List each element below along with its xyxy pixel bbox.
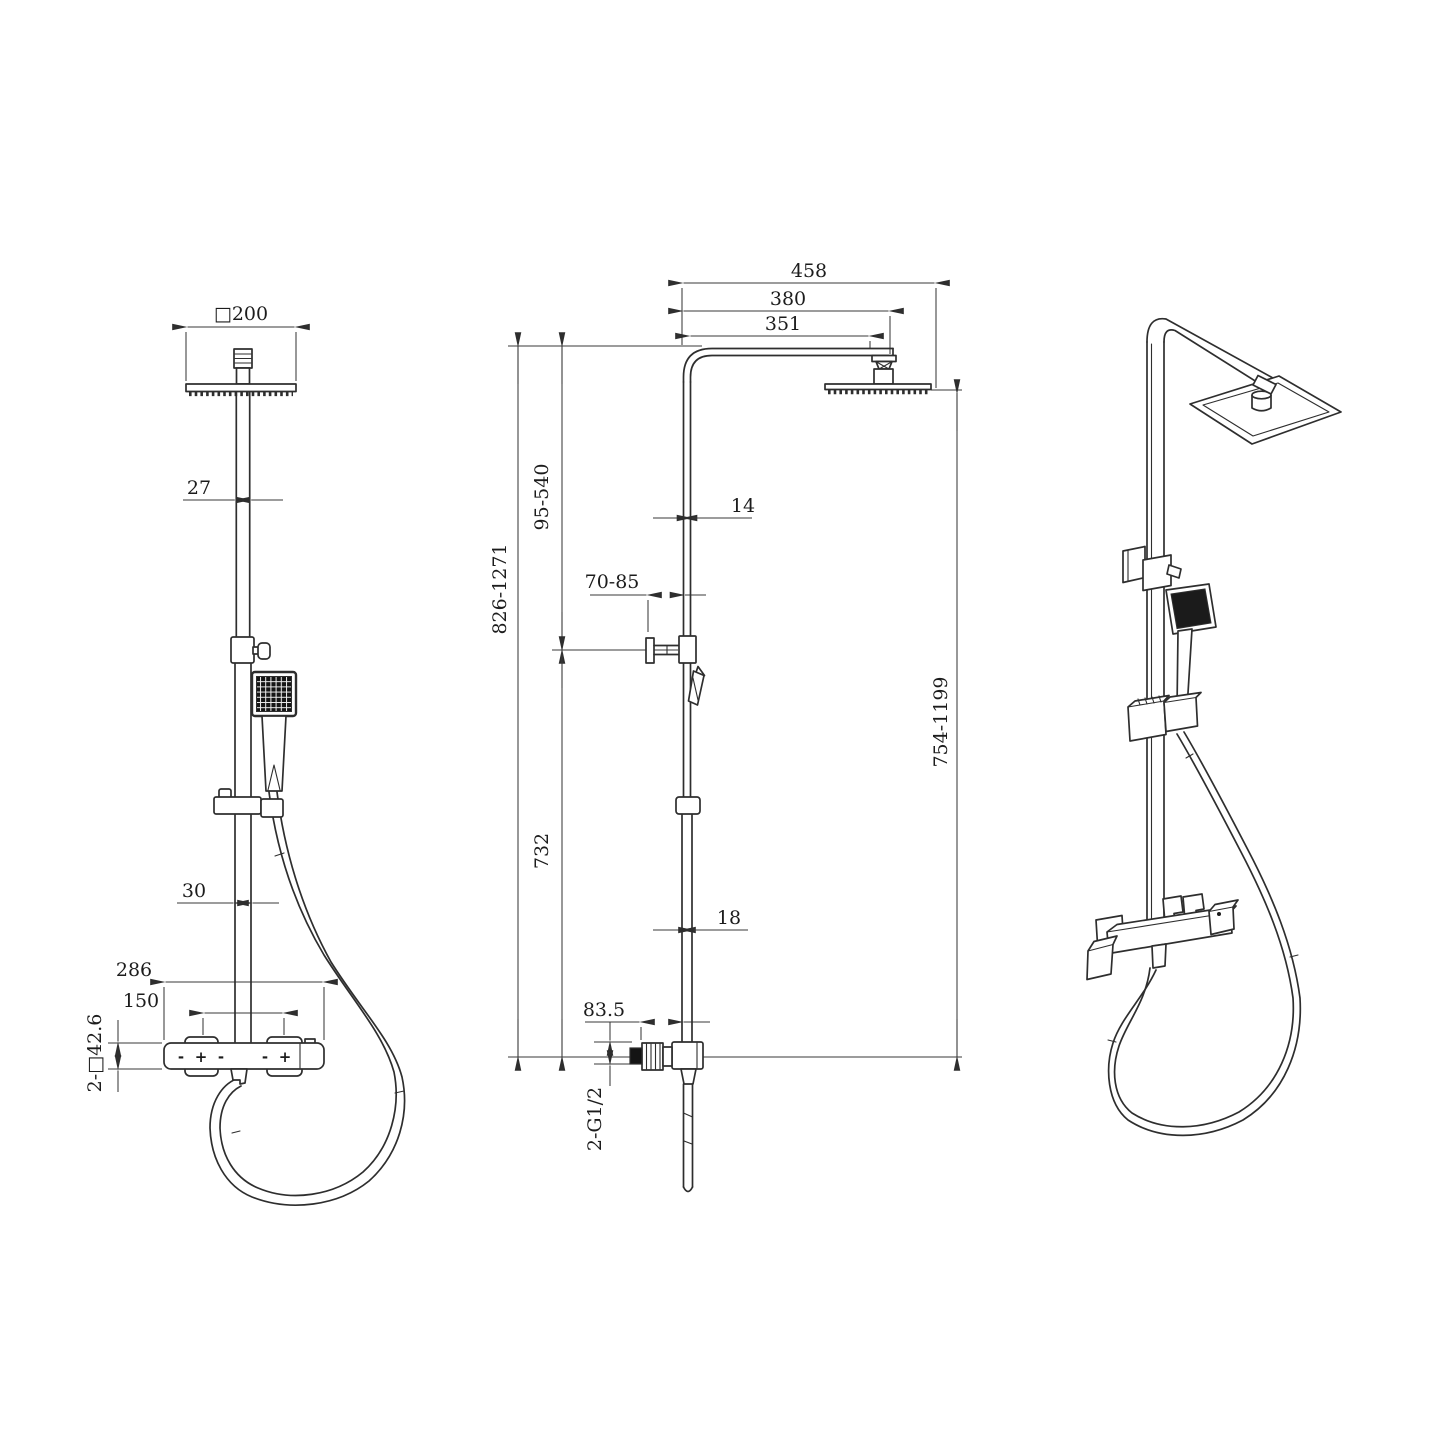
thermostatic-valve-front: - + - - + [164, 1037, 324, 1084]
slider-joint-side [676, 797, 700, 814]
shower-hose-front [210, 792, 405, 1205]
dim-front-lower-pipe: 30 [177, 880, 279, 903]
dim-side-arm-overall: 458 [682, 260, 936, 388]
valve-mark-minus-3: - [262, 1048, 268, 1066]
dim-side-inlet-offset: 83.5 [583, 999, 710, 1040]
valve-mark-minus-2: - [218, 1048, 224, 1066]
handle-holder [261, 799, 283, 817]
diverter-front [231, 637, 270, 663]
dim-label-front-head-size: □200 [214, 303, 268, 325]
shower-dimension-drawing: □200 27 30 286 150 [0, 0, 1445, 1445]
front-view: □200 27 30 286 150 [84, 303, 405, 1205]
dim-label-front-upper-pipe: 27 [187, 477, 211, 499]
handle-holder-perspective [1164, 693, 1201, 732]
head-connector-front [234, 349, 252, 384]
hand-shower-perspective [1166, 584, 1216, 710]
perspective-view [1087, 319, 1341, 1136]
valve-handle-right [1209, 900, 1238, 935]
dim-label-side-826-1271: 826-1271 [489, 543, 511, 634]
riser-and-arm-side [682, 349, 893, 1043]
valve-handle-left [1087, 936, 1117, 980]
dim-front-upper-pipe: 27 [183, 477, 283, 500]
rain-head-side [825, 356, 931, 393]
thermostatic-valve-side [630, 1042, 703, 1192]
dim-label-side-18: 18 [717, 907, 741, 929]
thermostatic-valve-perspective [1087, 894, 1238, 980]
hand-shower-front [252, 672, 296, 791]
dim-label-front-handle-spacing: 150 [123, 990, 159, 1012]
valve-outlet [231, 1069, 247, 1084]
dim-label-side-70-85: 70-85 [585, 571, 640, 593]
dim-label-side-380: 380 [770, 288, 806, 310]
dim-label-side-14: 14 [731, 495, 755, 517]
dim-side-arm-length: 351 [691, 313, 871, 349]
inlet-seal [630, 1048, 642, 1064]
dim-front-handle-spacing: 150 [123, 990, 284, 1035]
dim-label-side-754-1199: 754-1199 [930, 676, 952, 767]
valve-mark-plus-2: + [279, 1048, 292, 1066]
hand-shower-face-perspective [1171, 589, 1211, 629]
hand-shower-face [257, 677, 292, 712]
slider-bracket-front [214, 789, 283, 817]
dim-label-side-95-540: 95-540 [531, 464, 553, 531]
dim-label-front-escutcheons: 2-□42.6 [84, 1014, 106, 1093]
diverter-knob [258, 643, 270, 659]
dim-front-escutcheons: 2-□42.6 [84, 1014, 162, 1093]
dim-side-upper-pipe: 14 [653, 495, 755, 518]
dim-label-front-lower-pipe: 30 [182, 880, 206, 902]
dim-side-wall-offset: 70-85 [585, 571, 706, 632]
dim-label-side-732: 732 [531, 833, 553, 869]
valve-outlet-side [681, 1069, 696, 1084]
dim-label-side-g12: 2-G1/2 [584, 1087, 606, 1151]
dim-side-inlet-thread: 2-G1/2 [584, 1022, 632, 1151]
dim-side-heights: 95-540 732 826-1271 [489, 346, 562, 1057]
extension-lines-side [508, 346, 962, 1057]
head-nozzle [1252, 391, 1271, 411]
technical-drawing-page: □200 27 30 286 150 [0, 0, 1445, 1445]
dim-label-side-83-5: 83.5 [583, 999, 625, 1021]
rain-head-front [186, 384, 296, 394]
dim-side-riser-height: 754-1199 [930, 393, 957, 1057]
hose-drop-side [684, 1084, 693, 1192]
riser-pipe-front [235, 392, 251, 1042]
side-view: 458 380 351 95-540 732 [489, 260, 962, 1192]
dim-label-side-351: 351 [765, 313, 801, 335]
dim-side-lower-pipe: 18 [653, 907, 748, 930]
slider-bracket-perspective [1128, 693, 1201, 742]
valve-button-dot [1217, 912, 1221, 916]
valve-mark-plus-1: + [195, 1048, 208, 1066]
valve-mark-minus-1: - [178, 1048, 184, 1066]
hand-shower-handle [262, 716, 286, 791]
dim-label-front-valve-width: 286 [116, 959, 152, 981]
dim-label-side-458: 458 [791, 260, 827, 282]
valve-outlet-perspective [1152, 944, 1166, 968]
